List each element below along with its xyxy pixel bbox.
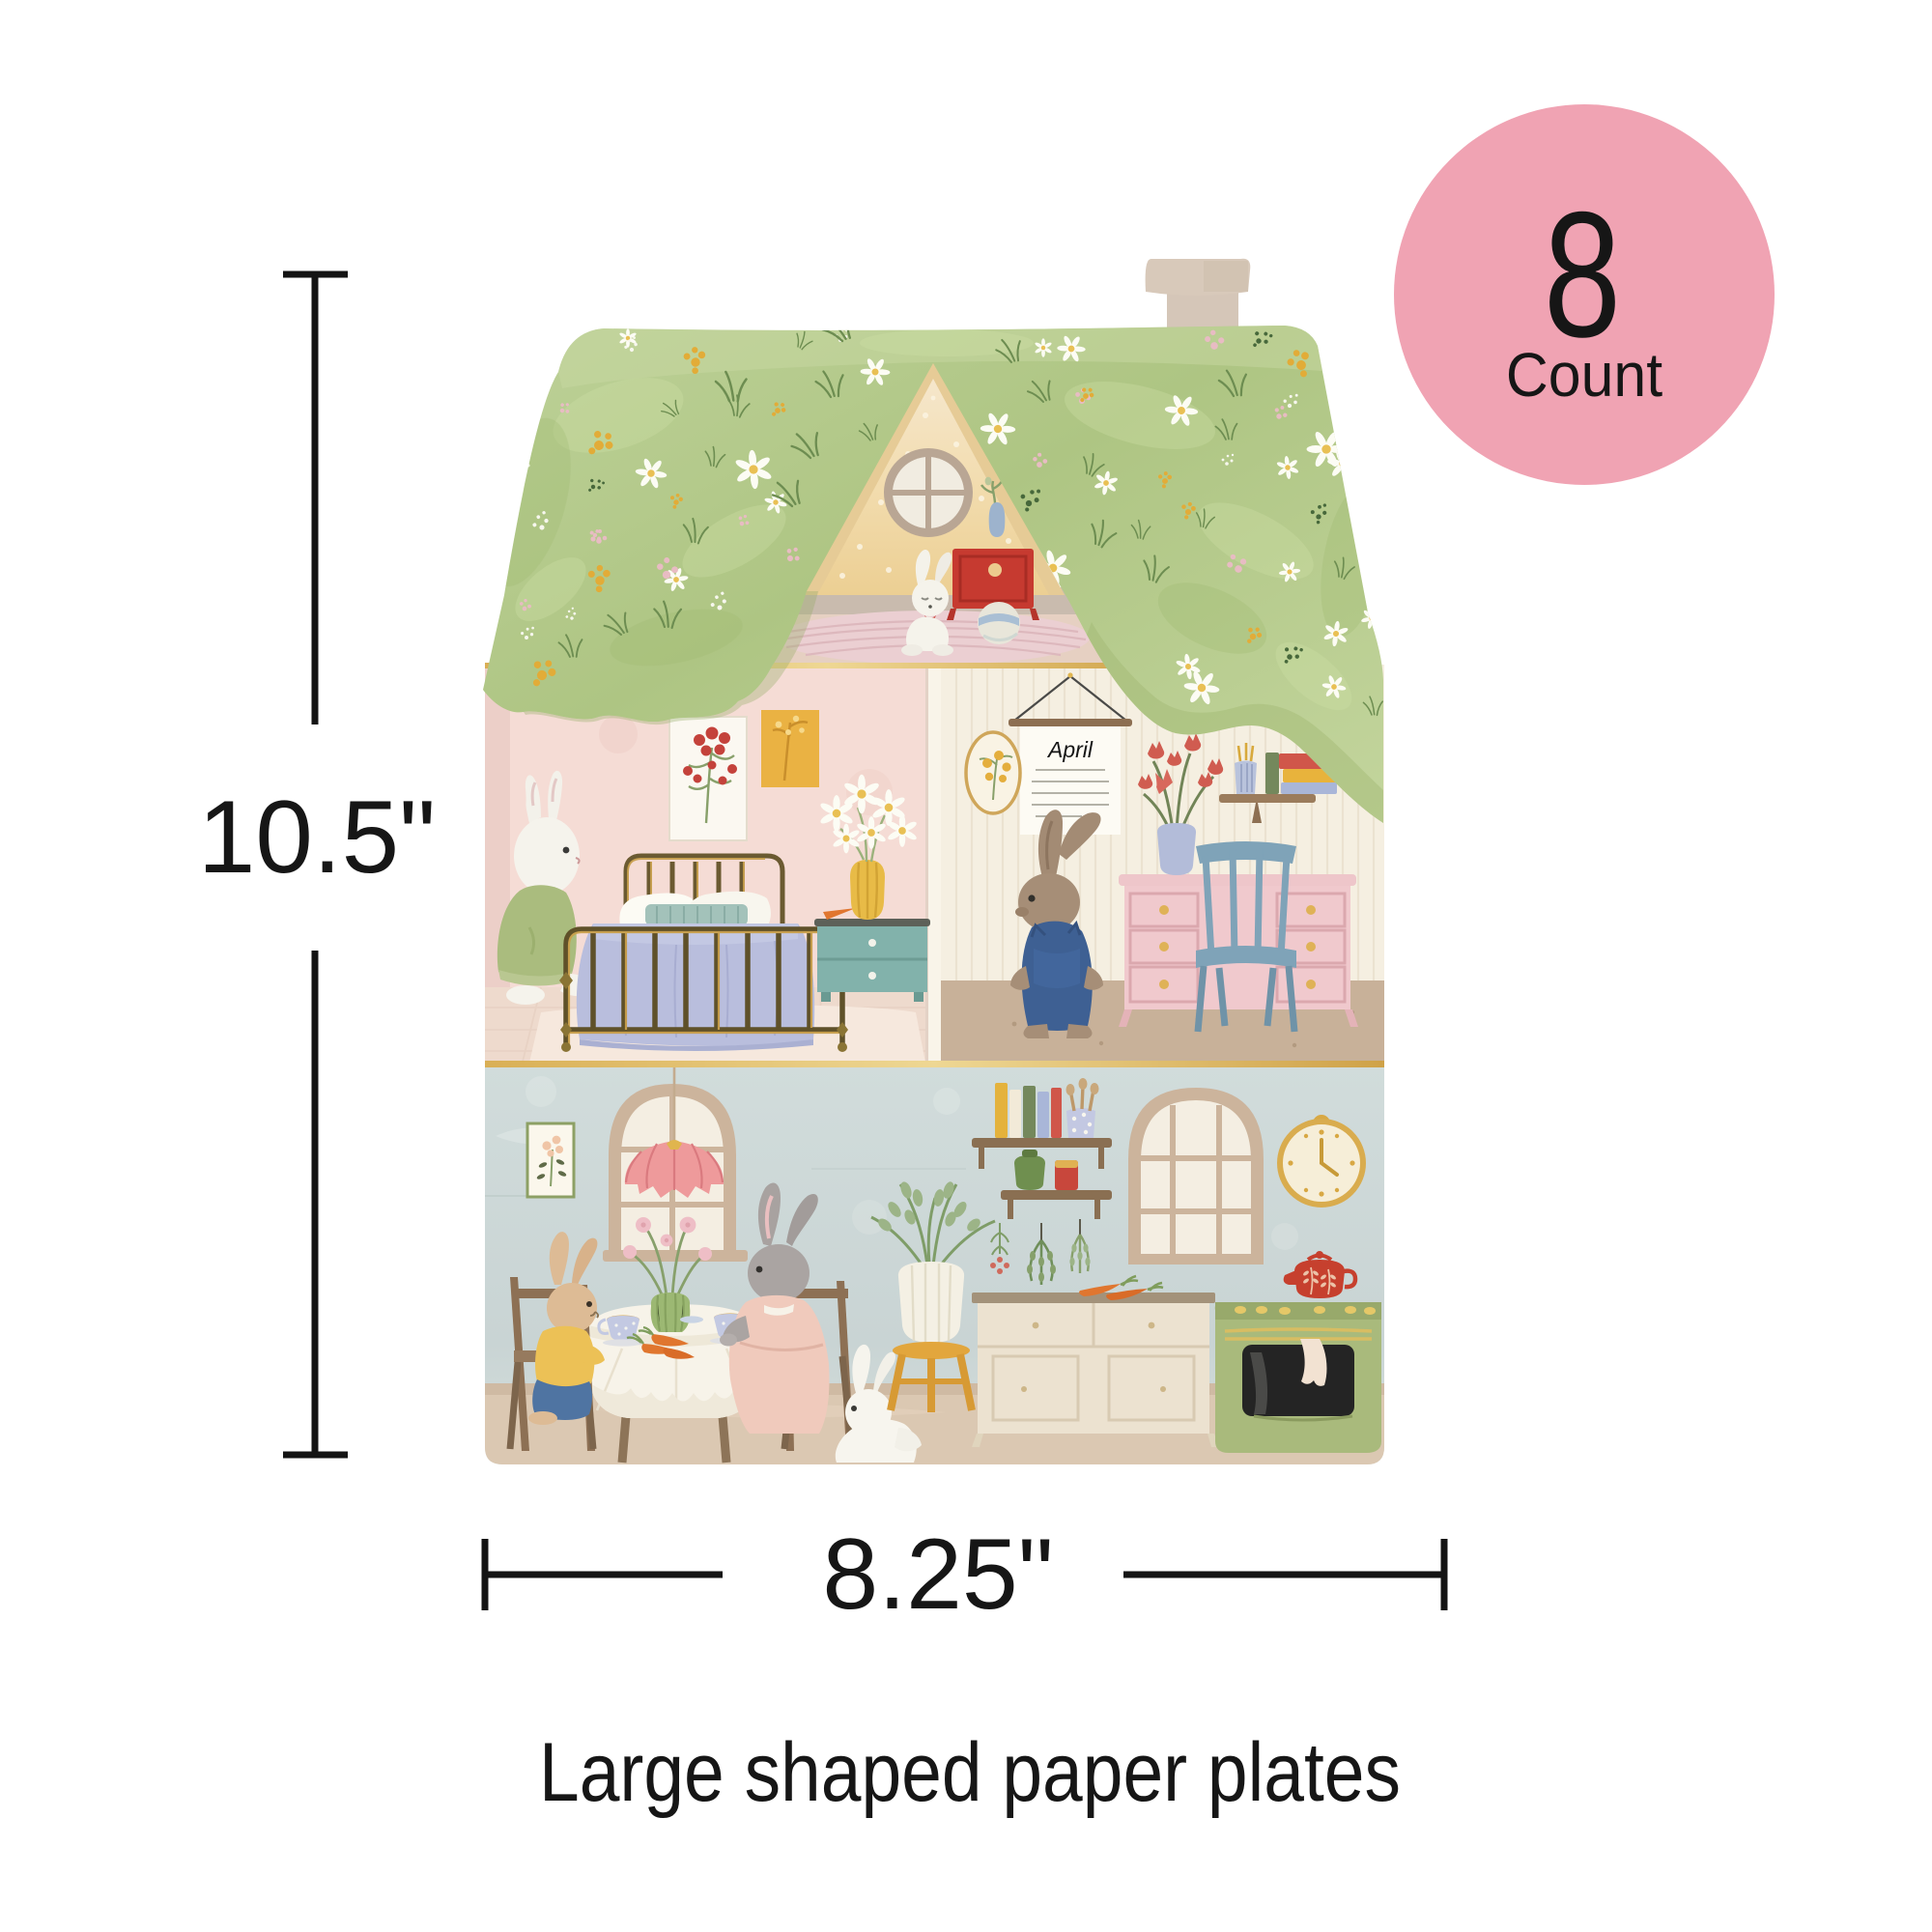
svg-text:Count: Count <box>1506 341 1662 411</box>
svg-text:8.25": 8.25" <box>822 1519 1053 1631</box>
svg-text:10.5": 10.5" <box>198 779 436 895</box>
svg-text:Large shaped paper plates: Large shaped paper plates <box>539 1726 1401 1819</box>
svg-text:April: April <box>1046 737 1094 762</box>
